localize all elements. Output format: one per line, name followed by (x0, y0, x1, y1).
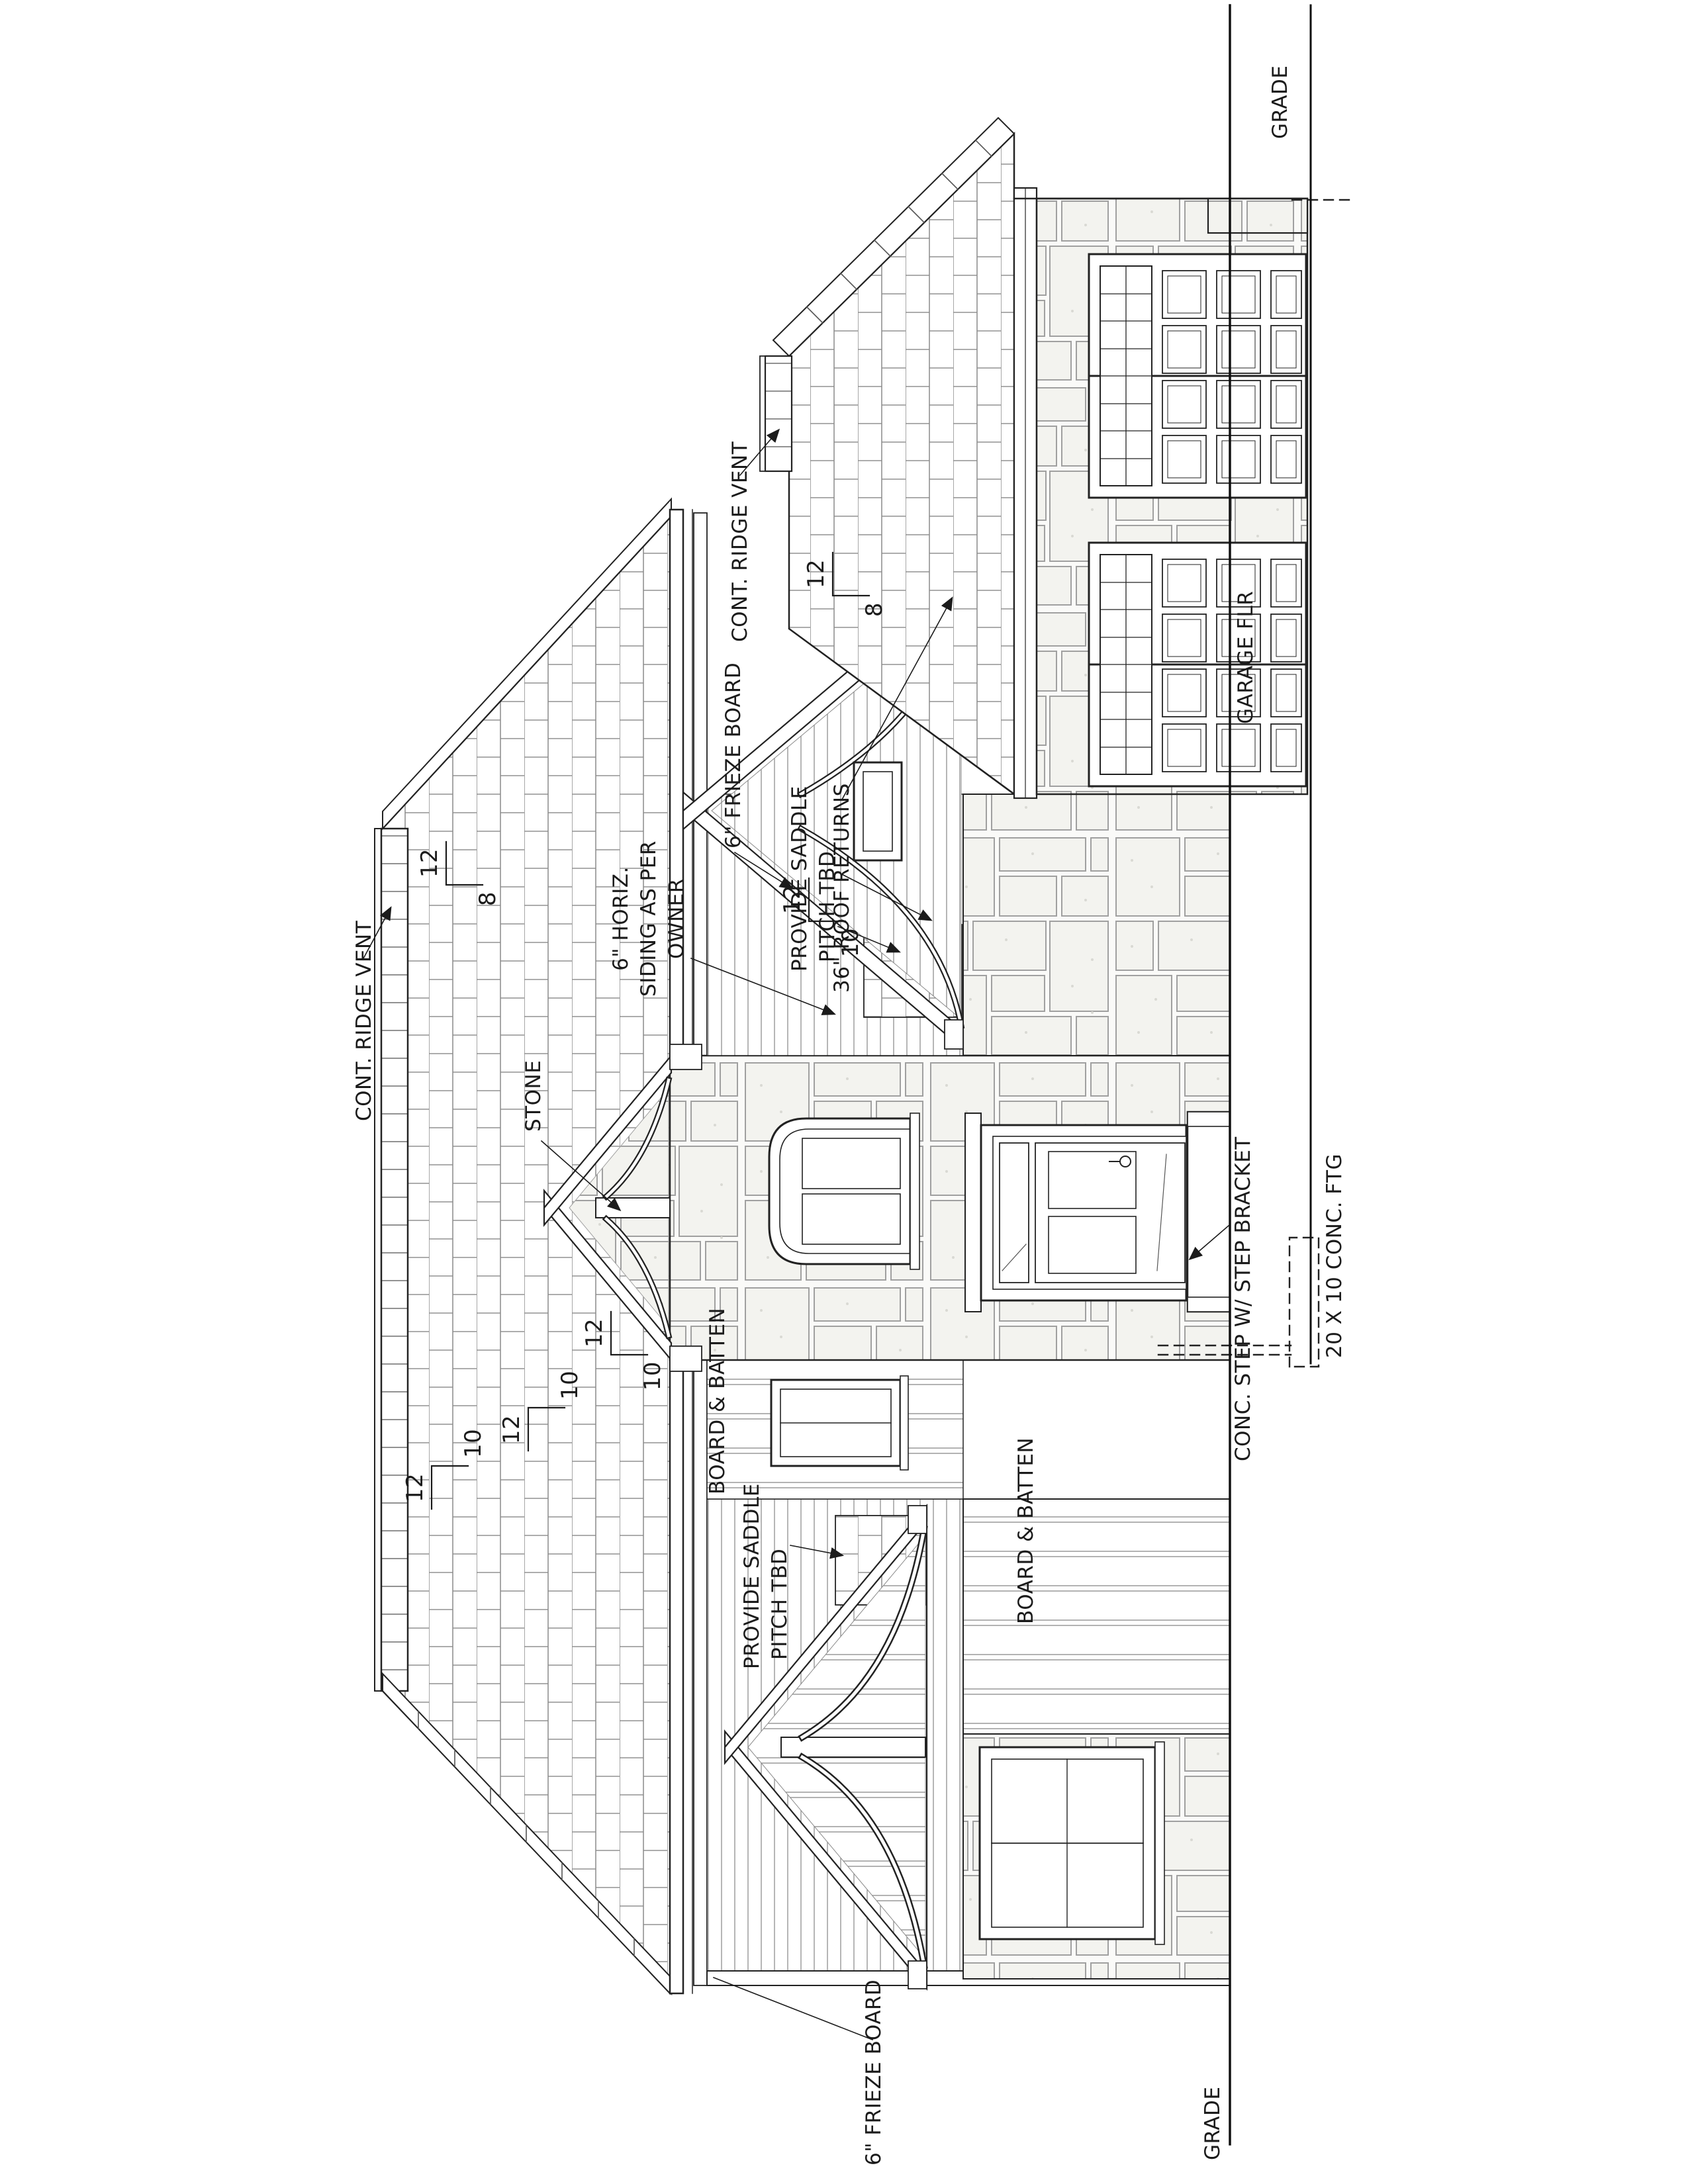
drawing-sheet: 12 8 12 8 12 10 12 10 12 10 (0, 0, 1688, 2184)
step-bracket (1188, 1112, 1230, 1126)
pitch-run: 12 (803, 559, 829, 588)
window-upper-gable (854, 762, 902, 860)
door-head-casing (965, 1113, 981, 1312)
label-conc-step: CONC. STEP W/ STEP BRACKET (1231, 1136, 1255, 1461)
pitch-run: 12 (498, 1415, 525, 1444)
label-roof-returns: 36" ROOF RETURNS (830, 783, 854, 993)
stone-wall-mid (963, 794, 1230, 1056)
corner-stone-pier (1208, 199, 1307, 233)
roof-return (908, 1961, 927, 1989)
door-transom (1000, 1143, 1029, 1283)
label-ridge-vent-right: CONT. RIDGE VENT (728, 441, 752, 642)
label-stone: STONE (522, 1060, 545, 1132)
entry-door (965, 1113, 1186, 1312)
label-saddle2-2: PITCH TBD (768, 1549, 792, 1660)
label-garage-floor: GARAGE FLR (1234, 591, 1258, 724)
elevation-drawing: 12 8 12 8 12 10 12 10 12 10 (0, 0, 1688, 2184)
pitch-run: 12 (416, 848, 443, 878)
pitch-rise: 8 (475, 891, 501, 906)
window-lower-left (980, 1742, 1164, 1944)
truss-kingpost (596, 1198, 670, 1218)
garage-door-left (1089, 543, 1306, 786)
label-siding-2: SIDING AS PER (637, 841, 661, 997)
label-siding-1: 6" HORIZ. (609, 866, 633, 971)
garage-section (1014, 188, 1356, 798)
label-grade-right: GRADE (1268, 66, 1292, 139)
pitch-rise: 10 (639, 1361, 666, 1390)
pitch-rise: 10 (557, 1371, 583, 1400)
garage-door-right (1089, 254, 1306, 498)
pitch-run: 12 (402, 1473, 428, 1502)
door-panel (1049, 1152, 1136, 1208)
window-left-band (771, 1376, 908, 1470)
label-grade-left: GRADE (1201, 2087, 1225, 2160)
window-arched-entry (769, 1113, 919, 1269)
roof-return (945, 1020, 963, 1049)
window-sill (1155, 1742, 1164, 1944)
eave-bracket (670, 1346, 702, 1371)
label-frieze-upper: 6" FRIEZE BOARD (722, 662, 745, 848)
pitch-rise: 8 (861, 602, 888, 617)
pitch-rise: 10 (460, 1429, 487, 1458)
window-sill (910, 1113, 919, 1269)
label-siding-3: OWNER (665, 878, 688, 959)
label-footing: 20 X 10 CONC. FTG (1323, 1154, 1346, 1358)
eave-bracket (670, 1044, 702, 1069)
step-bracket (1188, 1297, 1230, 1312)
roof-return (908, 1506, 927, 1533)
label-saddle1-1: PROVIDE SADDLE (788, 786, 812, 972)
window-sill (900, 1376, 908, 1470)
concrete-step (1188, 1112, 1230, 1312)
label-saddle2-1: PROVIDE SADDLE (740, 1483, 764, 1669)
label-board-batten-lower: BOARD & BATTEN (1014, 1437, 1038, 1624)
board-batten-wall-lower (963, 1499, 1230, 1734)
label-ridge-vent-main: CONT. RIDGE VENT (352, 920, 376, 1121)
pitch-run: 12 (581, 1318, 608, 1347)
label-board-batten-upper: BOARD & BATTEN (706, 1308, 729, 1494)
door-panel (1049, 1216, 1136, 1273)
label-frieze-left: 6" FRIEZE BOARD (862, 1979, 886, 2165)
